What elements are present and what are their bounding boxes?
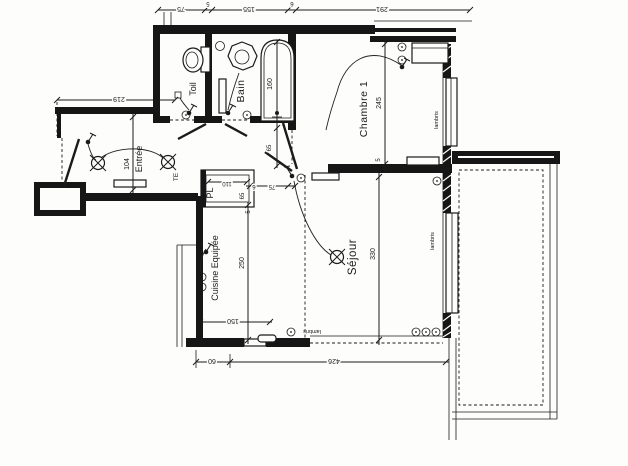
- ceiling-light-icon: [90, 155, 106, 171]
- wall-entree-top: [55, 107, 158, 114]
- svg-text:250: 250: [239, 257, 246, 269]
- socket-icon: [412, 328, 420, 336]
- socket-icon: [287, 328, 295, 336]
- socket-icon: [432, 328, 440, 336]
- socket-icon: [422, 328, 430, 336]
- wall-toil-left: [153, 25, 160, 121]
- svg-text:60: 60: [208, 357, 216, 364]
- sejour-door: [265, 152, 292, 171]
- entrance-door: [62, 138, 79, 186]
- heater-symbol: [216, 42, 225, 51]
- svg-text:160: 160: [267, 78, 274, 90]
- svg-text:426: 426: [328, 357, 340, 364]
- room-label-pl: PL: [205, 187, 215, 198]
- balcony-floor-dashed: [459, 170, 543, 405]
- dim-pl-65: 65: [240, 192, 246, 199]
- finish-label-lambris-bottom: lambris: [303, 328, 321, 334]
- dim-top-6: 6: [290, 0, 294, 6]
- socket-icon: [433, 177, 441, 185]
- dim-top-75: 75: [177, 5, 185, 12]
- toilet: [183, 47, 210, 72]
- room-label-bain: Bain: [235, 79, 247, 102]
- socket-icon: [398, 43, 406, 51]
- radiator-entree: [114, 180, 146, 187]
- dimension-sejour-330: 330: [370, 173, 382, 345]
- svg-text:245: 245: [376, 97, 383, 109]
- dim-219: 219: [113, 95, 125, 102]
- room-label-toil: Toil: [188, 82, 198, 96]
- dim-top-5: 5: [206, 0, 210, 6]
- balcony: [452, 151, 560, 419]
- bain-column: [219, 79, 226, 113]
- wall-top-b-outer: [370, 28, 456, 32]
- wall-entree-left: [57, 114, 61, 138]
- dimension-door-75-6: 6 75: [246, 183, 298, 189]
- dim-pl-110: 110: [222, 180, 232, 186]
- svg-text:104: 104: [124, 158, 131, 170]
- dimension-chain-bottom: 60 426: [193, 350, 449, 368]
- right-facade: [443, 44, 458, 338]
- floor-plan-page: 75 5 155 6 291 219: [0, 0, 628, 466]
- svg-text:330: 330: [370, 248, 377, 260]
- dimension-chambre-245: 245 5: [376, 40, 388, 173]
- svg-text:65: 65: [267, 144, 273, 151]
- socket-icon: [243, 111, 251, 119]
- socket-icon: [297, 174, 305, 182]
- svg-text:5: 5: [376, 158, 382, 162]
- switch-icon: [86, 133, 96, 144]
- dim-pl-5: 5: [246, 210, 252, 214]
- socket-icon: [398, 56, 406, 64]
- finish-label-lambris-chambre: lambris: [434, 111, 440, 129]
- ceiling-light-icon: [329, 249, 345, 265]
- room-label-sejour: Séjour: [347, 239, 359, 275]
- wall-entree-bottom: [82, 193, 198, 201]
- wall-below-toil-1: [153, 116, 170, 123]
- placard-closet: 110 PL 65 5 TE: [173, 170, 254, 214]
- wall-top-a: [153, 25, 375, 34]
- floor-plan-drawing: 75 5 155 6 291 219: [0, 0, 628, 466]
- entrance-door-leaf: [64, 139, 79, 186]
- wall-top-b-inner: [370, 36, 456, 42]
- switch-icon: [226, 104, 236, 115]
- wall-below-toil-2: [194, 116, 222, 123]
- wall-exterior-block-core: [40, 188, 80, 210]
- chambre-closet: [412, 43, 448, 63]
- dimension-cuisine-150: 150: [197, 317, 273, 325]
- bain-door: [222, 120, 248, 136]
- ceiling-light-icon: [160, 154, 176, 170]
- room-label-chambre: Chambre 1: [358, 81, 370, 137]
- walls: [34, 12, 472, 440]
- room-label-cuisine: Cuisine Equipée: [210, 235, 220, 301]
- wall-cuisine-bottom-1: [186, 338, 244, 347]
- finish-label-lambris-sejour: lambris: [430, 232, 436, 250]
- svg-text:150: 150: [227, 317, 239, 324]
- label-te: TE: [173, 172, 180, 181]
- dim-top-155: 155: [243, 5, 255, 12]
- chambre-window: [446, 78, 457, 146]
- dim-top-291: 291: [376, 5, 388, 12]
- sejour-sill: [258, 335, 276, 342]
- dimension-cuisine-250: 250: [239, 202, 251, 344]
- svg-text:75: 75: [268, 183, 275, 189]
- room-label-entree: Entrée: [134, 146, 144, 173]
- dimension-chain-top: 75 5 155 6 291: [155, 0, 473, 13]
- radiator-chambre: [407, 157, 439, 165]
- radiator-sejour: [312, 173, 339, 180]
